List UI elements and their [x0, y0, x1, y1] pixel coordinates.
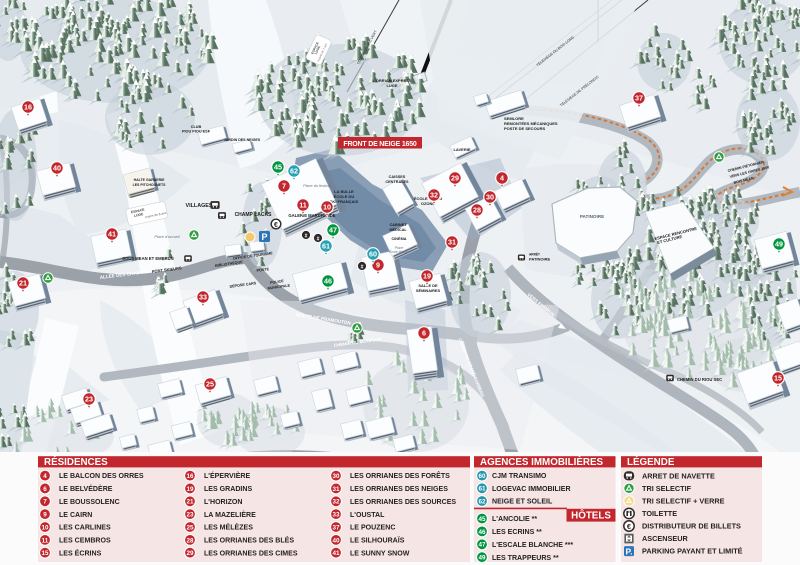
svg-text:10: 10 — [41, 524, 49, 531]
svg-text:LES ORRIANES DES FORÊTS: LES ORRIANES DES FORÊTS — [350, 471, 450, 480]
svg-text:ARRET DE NAVETTE: ARRET DE NAVETTE — [642, 471, 715, 480]
svg-text:AGENCES IMMOBILIÈRES: AGENCES IMMOBILIÈRES — [480, 456, 603, 468]
svg-text:28: 28 — [473, 206, 481, 215]
svg-text:CJM TRANSIMO: CJM TRANSIMO — [492, 473, 547, 480]
svg-text:33: 33 — [199, 293, 207, 302]
svg-text:SÉMINAIRES: SÉMINAIRES — [416, 288, 441, 293]
svg-text:TOILETTE: TOILETTE — [642, 509, 677, 518]
svg-text:46: 46 — [478, 529, 486, 536]
svg-text:LES ÉCRINS: LES ÉCRINS — [59, 548, 102, 557]
svg-text:CENTRALES: CENTRALES — [385, 180, 409, 184]
svg-text:L'ÉPERVIÈRE: L'ÉPERVIÈRE — [204, 471, 250, 480]
svg-text:7: 7 — [43, 499, 47, 506]
svg-text:Place du festival: Place du festival — [303, 184, 331, 188]
svg-text:LÉGENDE: LÉGENDE — [627, 456, 675, 468]
svg-text:60: 60 — [369, 250, 377, 259]
svg-text:LOGEVAC IMMOBILIER: LOGEVAC IMMOBILIER — [492, 486, 571, 493]
svg-text:45: 45 — [274, 163, 282, 172]
svg-text:LE BALCON DES ORRES: LE BALCON DES ORRES — [59, 473, 144, 480]
svg-text:16: 16 — [186, 473, 194, 480]
svg-text:HÔTELS: HÔTELS — [571, 510, 611, 522]
svg-text:POSTE DE SECOURS: POSTE DE SECOURS — [504, 126, 545, 131]
svg-text:40: 40 — [53, 164, 61, 173]
svg-text:37: 37 — [332, 524, 340, 531]
svg-text:21: 21 — [186, 499, 194, 506]
svg-text:LE BOUSSOLENC: LE BOUSSOLENC — [59, 499, 120, 506]
svg-text:LE SILHOURAÏS: LE SILHOURAÏS — [350, 536, 405, 544]
svg-text:PIOU PIOU ESF: PIOU PIOU ESF — [182, 130, 211, 134]
svg-text:30: 30 — [332, 473, 340, 480]
svg-text:ASCENSEUR: ASCENSEUR — [642, 534, 689, 543]
svg-text:49: 49 — [775, 240, 783, 249]
svg-text:62: 62 — [478, 498, 486, 505]
svg-text:MÉDICAL: MÉDICAL — [389, 227, 407, 232]
svg-text:PATINOIRE: PATINOIRE — [529, 257, 551, 262]
svg-text:#: # — [317, 237, 320, 243]
svg-text:LES TRAPPEURS **: LES TRAPPEURS ** — [492, 555, 559, 562]
svg-text:#: # — [305, 234, 308, 240]
svg-text:4: 4 — [500, 174, 504, 183]
svg-text:LES ECRINS **: LES ECRINS ** — [492, 529, 542, 536]
svg-text:45: 45 — [478, 516, 486, 523]
svg-text:15: 15 — [41, 550, 49, 557]
svg-text:LE POUZENC: LE POUZENC — [350, 525, 395, 532]
svg-text:P: P — [261, 232, 267, 242]
svg-text:11: 11 — [42, 537, 49, 544]
svg-text:CINÉMA: CINÉMA — [392, 236, 407, 241]
svg-text:41: 41 — [332, 550, 340, 557]
svg-text:École Hadou: École Hadou — [389, 249, 409, 254]
svg-text:47: 47 — [478, 542, 486, 549]
svg-text:61: 61 — [478, 486, 486, 493]
svg-text:SOUS MEAN ET EMBRUN: SOUS MEAN ET EMBRUN — [122, 256, 173, 261]
svg-text:VILLAGES: VILLAGES — [186, 203, 213, 209]
svg-text:PATINOIRE: PATINOIRE — [580, 214, 604, 219]
svg-text:29: 29 — [186, 550, 194, 557]
svg-text:PARKING PAYANT ET LIMITÉ: PARKING PAYANT ET LIMITÉ — [642, 547, 743, 556]
svg-text:DISTRIBUTEUR DE BILLETS: DISTRIBUTEUR DE BILLETS — [642, 522, 741, 531]
svg-text:62: 62 — [290, 167, 298, 176]
svg-text:40: 40 — [332, 537, 340, 544]
svg-text:9: 9 — [43, 512, 47, 519]
svg-text:60: 60 — [478, 473, 486, 480]
svg-text:LES PITCHOUNETS: LES PITCHOUNETS — [133, 183, 167, 187]
svg-text:11: 11 — [299, 201, 307, 210]
svg-text:LAVERIE: LAVERIE — [453, 147, 470, 152]
svg-text:28: 28 — [186, 537, 194, 544]
svg-text:RÉSIDENCES: RÉSIDENCES — [44, 456, 108, 468]
svg-text:23: 23 — [186, 512, 194, 519]
svg-text:CLUB: CLUB — [191, 125, 202, 129]
svg-text:HALTE GARDERIE: HALTE GARDERIE — [134, 178, 166, 182]
svg-text:L'HORIZON: L'HORIZON — [204, 499, 242, 506]
svg-text:CHAMP LACAS: CHAMP LACAS — [235, 212, 273, 218]
svg-text:LES ORRIANES DES BLÉS: LES ORRIANES DES BLÉS — [204, 535, 294, 544]
svg-text:LES MÉLÈZES: LES MÉLÈZES — [204, 523, 253, 532]
svg-text:L'ANCOLIE **: L'ANCOLIE ** — [492, 516, 537, 523]
svg-text:32: 32 — [430, 191, 438, 200]
svg-text:19: 19 — [423, 272, 431, 281]
svg-text:P.: P. — [626, 546, 633, 556]
svg-text:21: 21 — [19, 279, 27, 288]
svg-text:LES GRADINS: LES GRADINS — [204, 486, 252, 493]
svg-text:4: 4 — [43, 473, 47, 480]
svg-text:TRI SELECTIF + VERRE: TRI SELECTIF + VERRE — [642, 497, 725, 506]
svg-text:L'ESCALE BLANCHE ***: L'ESCALE BLANCHE *** — [492, 542, 573, 549]
svg-text:#: # — [361, 265, 364, 271]
svg-text:33: 33 — [332, 512, 340, 519]
svg-text:LES CEMBROS: LES CEMBROS — [59, 537, 111, 544]
svg-text:61: 61 — [322, 242, 330, 251]
svg-text:LE CAIRN: LE CAIRN — [59, 512, 92, 519]
svg-text:JARDIN DES NEIGES: JARDIN DES NEIGES — [224, 138, 261, 142]
svg-text:FRONT DE NEIGE 1650: FRONT DE NEIGE 1650 — [343, 141, 417, 148]
svg-text:32: 32 — [332, 499, 340, 506]
svg-text:€: € — [274, 222, 278, 229]
svg-text:NEIGE ET SOLEIL: NEIGE ET SOLEIL — [492, 499, 553, 506]
svg-text:25: 25 — [206, 380, 214, 389]
svg-text:LES ORRIANES DES SOURCES: LES ORRIANES DES SOURCES — [350, 499, 456, 506]
svg-text:25: 25 — [186, 524, 194, 531]
svg-text:SKI FRANÇAIS: SKI FRANÇAIS — [330, 199, 359, 204]
svg-text:LE SUNNY SNOW: LE SUNNY SNOW — [350, 550, 410, 557]
svg-text:6: 6 — [422, 329, 426, 338]
svg-text:46: 46 — [324, 277, 332, 286]
svg-text:19: 19 — [186, 486, 194, 493]
svg-text:31: 31 — [332, 486, 340, 493]
svg-text:LES ORRIANES DES NEIGES: LES ORRIANES DES NEIGES — [350, 486, 448, 493]
svg-text:37: 37 — [635, 94, 643, 103]
svg-text:CABINET: CABINET — [390, 223, 408, 227]
svg-text:9: 9 — [376, 261, 380, 270]
svg-text:23: 23 — [85, 395, 93, 404]
svg-text:CHEMIN DU RIOU SEC: CHEMIN DU RIOU SEC — [677, 377, 722, 382]
svg-text:LES ORRIANES DES CIMES: LES ORRIANES DES CIMES — [204, 550, 298, 557]
svg-text:LE BELVÉDÈRE: LE BELVÉDÈRE — [59, 484, 113, 493]
svg-text:15: 15 — [774, 374, 782, 383]
svg-text:31: 31 — [448, 238, 456, 247]
svg-text:7: 7 — [282, 182, 286, 191]
svg-text:L'OUSTAL: L'OUSTAL — [350, 512, 385, 519]
svg-text:TRI SELECTIF: TRI SELECTIF — [642, 484, 692, 493]
svg-text:Place d'accueil: Place d'accueil — [154, 235, 179, 239]
svg-text:49: 49 — [478, 555, 486, 562]
svg-text:41: 41 — [108, 230, 116, 239]
svg-text:29: 29 — [451, 174, 459, 183]
svg-text:16: 16 — [24, 103, 32, 112]
svg-text:LES CARLINES: LES CARLINES — [59, 525, 111, 532]
svg-text:LA MAZELIÈRE: LA MAZELIÈRE — [204, 510, 256, 519]
svg-text:30: 30 — [486, 193, 494, 202]
svg-text:47: 47 — [329, 226, 337, 235]
svg-text:6: 6 — [43, 486, 47, 493]
svg-text:CAISSES: CAISSES — [389, 175, 406, 179]
svg-text:10: 10 — [323, 203, 331, 212]
svg-text:LUGE: LUGE — [386, 83, 397, 88]
